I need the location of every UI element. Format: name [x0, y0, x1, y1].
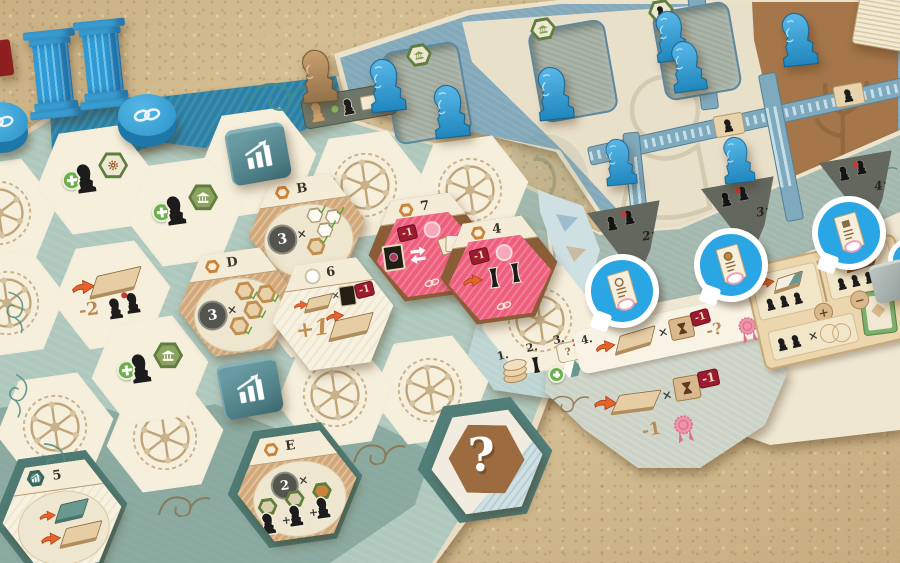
stele-card-icon — [606, 269, 638, 309]
tile-letter: B — [296, 181, 309, 197]
tile-letter: D — [226, 255, 239, 271]
black-bust-icon — [792, 290, 806, 305]
hex-ring-icon — [204, 259, 221, 274]
check-icon — [249, 290, 259, 300]
black-bust-icon — [776, 336, 791, 352]
sequence-step-4: 4. — [580, 332, 594, 347]
seal-penalty-label: -1 — [640, 419, 662, 442]
penalty-badge: -1 — [353, 280, 375, 299]
check-icon — [317, 204, 327, 214]
question-mark: ? — [467, 427, 496, 482]
game-table: 2× 3× 4× 1. 2 — [0, 0, 900, 563]
stele-card-icon — [715, 243, 747, 283]
action-tile-4[interactable]: 4 -1 — [440, 219, 558, 321]
plus-symbol: + — [308, 505, 319, 519]
acanthus-ornament — [0, 367, 67, 427]
check-icon — [327, 219, 337, 229]
blue-bust-piece[interactable] — [775, 4, 829, 71]
column-piece[interactable] — [26, 30, 80, 118]
column-piece[interactable] — [76, 20, 130, 108]
check-icon — [257, 309, 267, 319]
tile-number: 7 — [419, 198, 430, 214]
chain-link-icon — [126, 99, 168, 131]
black-bust-icon — [836, 276, 850, 291]
stele-icon — [502, 255, 528, 290]
times-symbol: × — [226, 302, 238, 317]
times-symbol: × — [297, 472, 309, 487]
gain-arrow-icon — [323, 308, 345, 324]
floor-tile-icon — [614, 325, 655, 356]
black-bust-icon — [71, 158, 103, 196]
card-deck[interactable] — [851, 0, 900, 52]
wax-seal-icon — [665, 407, 703, 448]
disc-stack-icon — [500, 358, 526, 384]
hex-ring-icon — [470, 226, 487, 241]
hex-ring-icon — [398, 203, 415, 218]
gain-arrow-icon — [37, 508, 56, 522]
times-symbol: × — [807, 328, 820, 344]
stele-card-icon — [833, 211, 865, 251]
tile-number: 6 — [325, 264, 336, 280]
bar-chart-icon — [240, 137, 279, 174]
times-symbol: × — [296, 226, 308, 241]
blue-bust-piece[interactable] — [363, 50, 417, 117]
blue-bust-piece[interactable] — [427, 76, 481, 143]
tile-letter: E — [284, 438, 296, 454]
tile-number: 5 — [51, 468, 62, 484]
check-icon — [319, 234, 329, 244]
hex-penalty-label: -2 — [77, 298, 100, 322]
teal-hex-badge-icon — [26, 469, 46, 487]
blue-bust-piece[interactable] — [599, 130, 647, 190]
blue-bust-piece[interactable] — [717, 128, 765, 188]
black-bust-icon — [764, 296, 778, 311]
black-bust-icon — [849, 273, 863, 288]
black-bust-icon — [789, 332, 804, 348]
circle-ring-icon — [304, 267, 322, 285]
plus-icon — [548, 366, 565, 383]
tan-bust-piece[interactable] — [295, 34, 349, 114]
hex-ring-icon — [274, 185, 291, 200]
blue-bust-piece[interactable] — [664, 31, 718, 97]
check-icon — [243, 325, 253, 335]
bar-chart-prism-piece[interactable] — [216, 355, 285, 421]
gain-arrow-icon — [592, 336, 616, 354]
black-bust-icon — [778, 293, 792, 308]
times-symbol: × — [657, 324, 670, 340]
black-bust-icon — [126, 348, 158, 386]
plus-symbol: + — [281, 513, 292, 527]
black-bust-icon — [161, 190, 193, 228]
check-icon — [335, 206, 345, 216]
action-tile-6[interactable]: 6 × -1 +1 — [272, 261, 394, 367]
mystery-tile[interactable]: ? — [431, 413, 543, 511]
blue-bust-piece[interactable] — [531, 58, 585, 125]
chain-disc-token[interactable] — [118, 94, 176, 136]
bar-chart-prism-piece[interactable] — [224, 121, 293, 187]
chain-link-icon — [0, 107, 20, 137]
action-tile-5[interactable]: 5 — [2, 463, 122, 563]
swap-arrows-icon — [403, 240, 432, 269]
bar-chart-icon — [232, 371, 271, 408]
building-tile-e[interactable]: E 2 × + + — [237, 434, 357, 538]
black-bust-icon — [258, 509, 281, 537]
tile-number: 4 — [491, 221, 502, 237]
hex-ring-icon — [263, 442, 280, 457]
